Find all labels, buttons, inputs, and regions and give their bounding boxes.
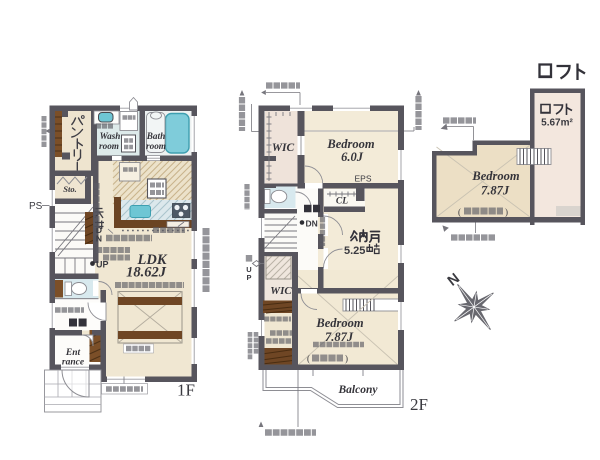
svg-text:Bedroom: Bedroom xyxy=(471,169,520,183)
svg-text:Ent: Ent xyxy=(65,348,81,358)
svg-text:6.0J: 6.0J xyxy=(341,150,364,164)
svg-text:UP: UP xyxy=(96,260,109,270)
svg-text:): ) xyxy=(505,207,508,217)
svg-text:5.67m²: 5.67m² xyxy=(541,118,573,129)
svg-text:Wash: Wash xyxy=(100,131,121,141)
svg-text:(: ( xyxy=(307,354,310,364)
svg-text:PS: PS xyxy=(29,201,43,212)
svg-text:Sto.: Sto. xyxy=(63,184,76,194)
svg-text:): ) xyxy=(345,354,348,364)
svg-text:CL: CL xyxy=(336,197,348,207)
svg-text:Balcony: Balcony xyxy=(338,384,379,396)
svg-text:Bath: Bath xyxy=(146,131,165,141)
svg-text:(: ( xyxy=(458,207,461,217)
svg-text:Bedroom: Bedroom xyxy=(315,316,364,330)
svg-text:room: room xyxy=(99,141,119,151)
svg-text:N: N xyxy=(96,234,102,244)
svg-text:rance: rance xyxy=(62,358,85,368)
svg-text:2F: 2F xyxy=(410,395,428,414)
svg-text:5.25: 5.25 xyxy=(344,245,365,257)
svg-text:Bedroom: Bedroom xyxy=(326,137,375,151)
svg-text:EPS: EPS xyxy=(354,174,371,184)
svg-text:room: room xyxy=(146,141,166,151)
svg-text:P: P xyxy=(246,273,251,282)
svg-text:1F: 1F xyxy=(177,381,195,400)
svg-text:WIC: WIC xyxy=(270,285,292,297)
svg-text:WIC: WIC xyxy=(272,142,295,154)
svg-text:DN: DN xyxy=(306,219,318,229)
svg-text:18.62J: 18.62J xyxy=(126,265,167,281)
svg-text:7.87J: 7.87J xyxy=(481,184,510,198)
